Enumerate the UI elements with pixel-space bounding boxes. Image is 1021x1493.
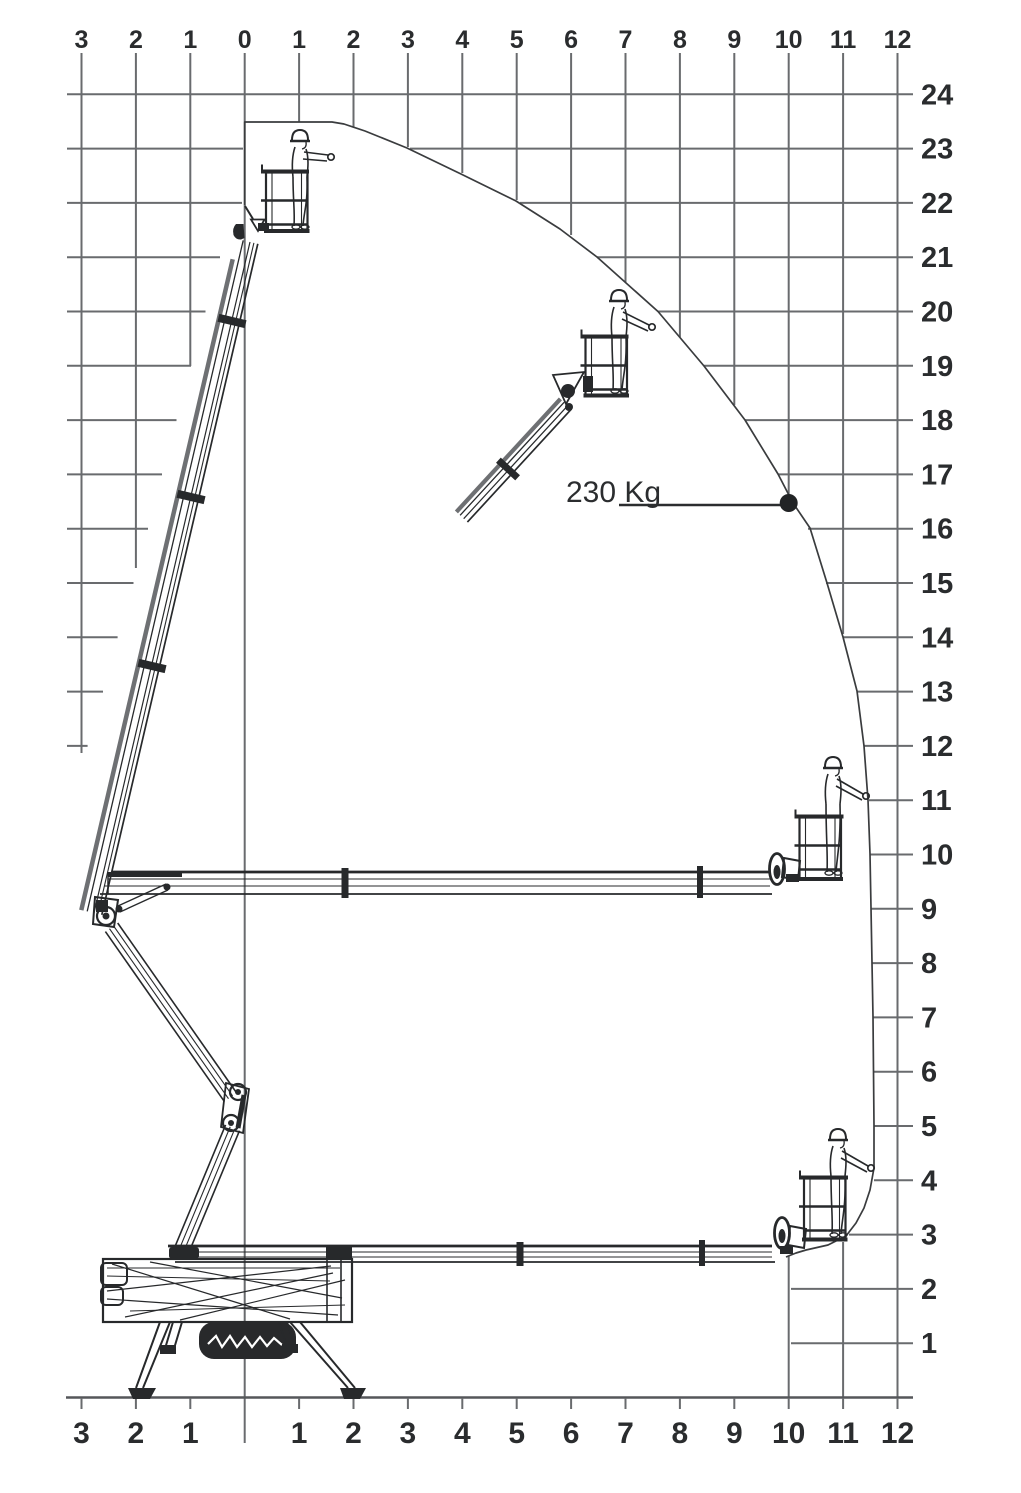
svg-text:21: 21 [921,242,953,274]
svg-text:13: 13 [921,677,953,709]
svg-text:6: 6 [564,26,578,54]
svg-text:4: 4 [921,1165,937,1197]
svg-text:19: 19 [921,351,953,383]
svg-text:2: 2 [128,1417,145,1450]
svg-text:8: 8 [672,1417,689,1450]
svg-text:23: 23 [921,134,953,166]
svg-text:11: 11 [827,1417,859,1450]
svg-text:22: 22 [921,188,953,220]
svg-text:17: 17 [921,459,953,491]
svg-text:3: 3 [921,1220,937,1252]
svg-text:1: 1 [292,26,306,54]
svg-text:12: 12 [884,26,912,54]
svg-text:5: 5 [921,1111,937,1143]
svg-text:2: 2 [129,26,143,54]
svg-text:24: 24 [921,79,953,111]
svg-text:6: 6 [921,1057,937,1089]
svg-text:1: 1 [921,1328,937,1360]
svg-text:11: 11 [830,26,857,54]
svg-text:3: 3 [73,1417,90,1450]
svg-text:4: 4 [455,26,469,54]
svg-text:1: 1 [291,1417,308,1450]
svg-text:4: 4 [454,1417,471,1450]
svg-text:7: 7 [617,1417,634,1450]
svg-text:0: 0 [238,26,252,54]
svg-text:20: 20 [921,297,953,329]
svg-text:2: 2 [345,1417,362,1450]
svg-text:5: 5 [510,26,524,54]
svg-text:5: 5 [508,1417,525,1450]
svg-text:2: 2 [347,26,361,54]
svg-text:1: 1 [183,26,197,54]
svg-text:10: 10 [921,840,953,872]
svg-text:15: 15 [921,568,953,600]
svg-text:11: 11 [921,785,952,817]
svg-text:9: 9 [921,894,937,926]
svg-text:1: 1 [182,1417,199,1450]
svg-text:7: 7 [619,26,633,54]
svg-text:12: 12 [921,731,953,763]
svg-text:16: 16 [921,514,953,546]
svg-text:12: 12 [881,1417,914,1450]
svg-text:3: 3 [75,26,89,54]
svg-text:6: 6 [563,1417,580,1450]
svg-text:8: 8 [673,26,687,54]
svg-text:7: 7 [921,1002,937,1034]
svg-text:9: 9 [726,1417,743,1450]
svg-text:18: 18 [921,405,953,437]
svg-text:10: 10 [772,1417,805,1450]
svg-text:14: 14 [921,622,953,654]
svg-text:8: 8 [921,948,937,980]
svg-text:3: 3 [400,1417,417,1450]
svg-text:10: 10 [775,26,803,54]
svg-text:2: 2 [921,1274,937,1306]
svg-text:3: 3 [401,26,415,54]
svg-text:9: 9 [727,26,741,54]
